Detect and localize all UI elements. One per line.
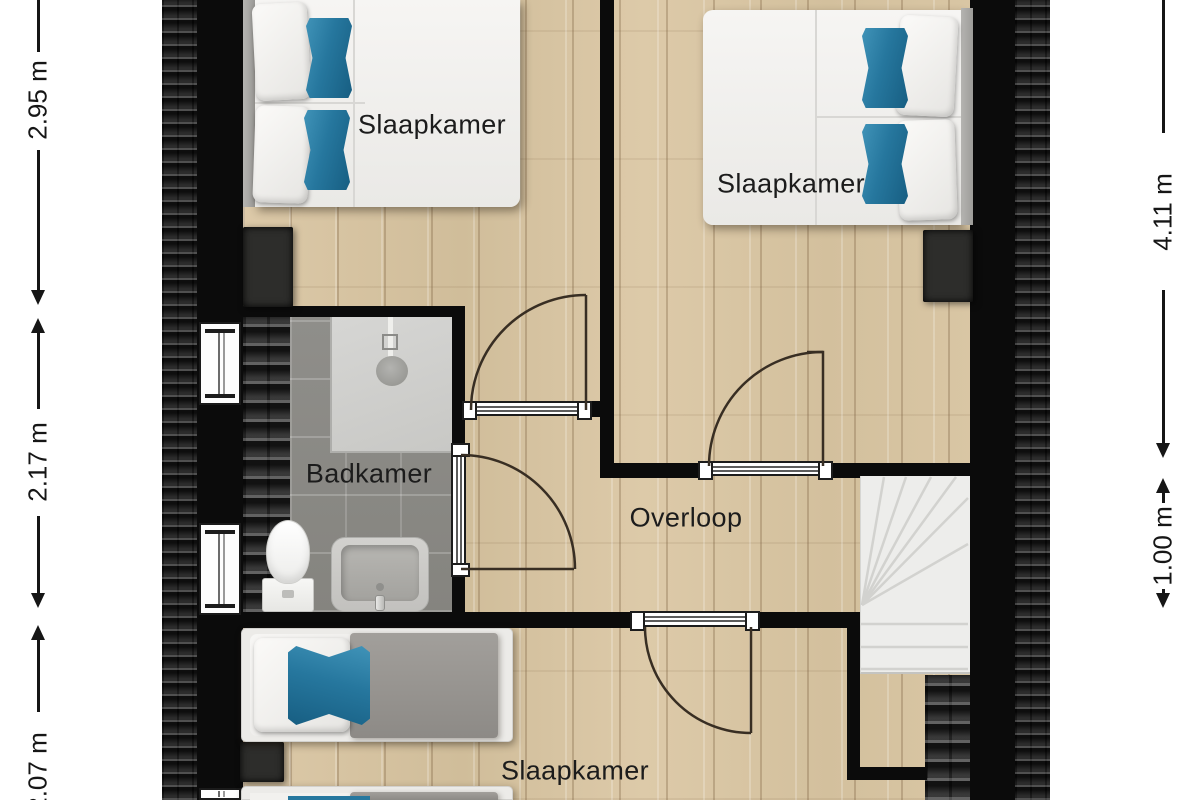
wall-landing-south-a (197, 612, 630, 628)
room-label-overloop: Overloop (630, 503, 743, 534)
toilet (262, 520, 314, 614)
nightstand (923, 230, 973, 302)
nightstand (240, 742, 284, 782)
room-label-badkamer: Badkamer (306, 459, 432, 490)
bed-top-left (243, 0, 520, 212)
roof-strip-left (162, 0, 197, 800)
door-sill-bathroom (451, 443, 466, 577)
room-label-slaapkamer-bottom: Slaapkamer (501, 756, 649, 787)
accent-pillow (304, 110, 350, 190)
washbasin (331, 537, 429, 612)
stairs (860, 476, 970, 674)
wall-stairwell-south (857, 767, 927, 780)
window-bathroom-lower (199, 523, 241, 615)
floorplan-canvas: Slaapkamer Slaapkamer Badkamer Overloop … (0, 0, 1200, 800)
wall-landing-south-b (760, 612, 857, 628)
pillow (252, 105, 310, 204)
shower-head-valve (382, 334, 398, 350)
accent-pillow (306, 18, 352, 98)
window-bathroom-upper (199, 322, 241, 405)
roof-strip-right (1015, 0, 1050, 800)
roof-slope-stairwell (925, 675, 970, 800)
room-label-slaapkamer-top-right: Slaapkamer (717, 169, 865, 200)
wall-bedrooms-south-a (600, 463, 698, 478)
nightstand (243, 227, 293, 307)
accent-pillow (862, 28, 908, 108)
dimension-label: 2.07 m (23, 732, 54, 800)
dimension-label: 4.11 m (1148, 173, 1179, 251)
pillow (251, 2, 311, 102)
accent-pillow (288, 646, 370, 725)
headboard (961, 8, 973, 225)
gray-duvet (350, 633, 498, 738)
accent-pillow (862, 124, 908, 204)
dimension-label: 1.00 m (1148, 506, 1179, 586)
wall-right-exterior (970, 0, 1015, 800)
bed-bottom-single (241, 628, 513, 742)
wall-stairwell-west (847, 612, 860, 780)
door-sill-bedroom-top-left (462, 401, 592, 416)
room-label-slaapkamer-top-left: Slaapkamer (358, 110, 506, 141)
door-sill-bedroom-bottom (630, 611, 760, 627)
dimension-label: 2.95 m (23, 60, 54, 140)
window-bottom-bedroom (199, 788, 241, 800)
bed-bottom-single-partial (241, 786, 513, 800)
dimension-label: 2.17 m (23, 422, 54, 502)
shower-drain (376, 356, 408, 386)
wall-center-partition (600, 0, 614, 478)
wall-bathroom-north (243, 306, 463, 317)
door-sill-bedroom-top-right (698, 461, 833, 476)
